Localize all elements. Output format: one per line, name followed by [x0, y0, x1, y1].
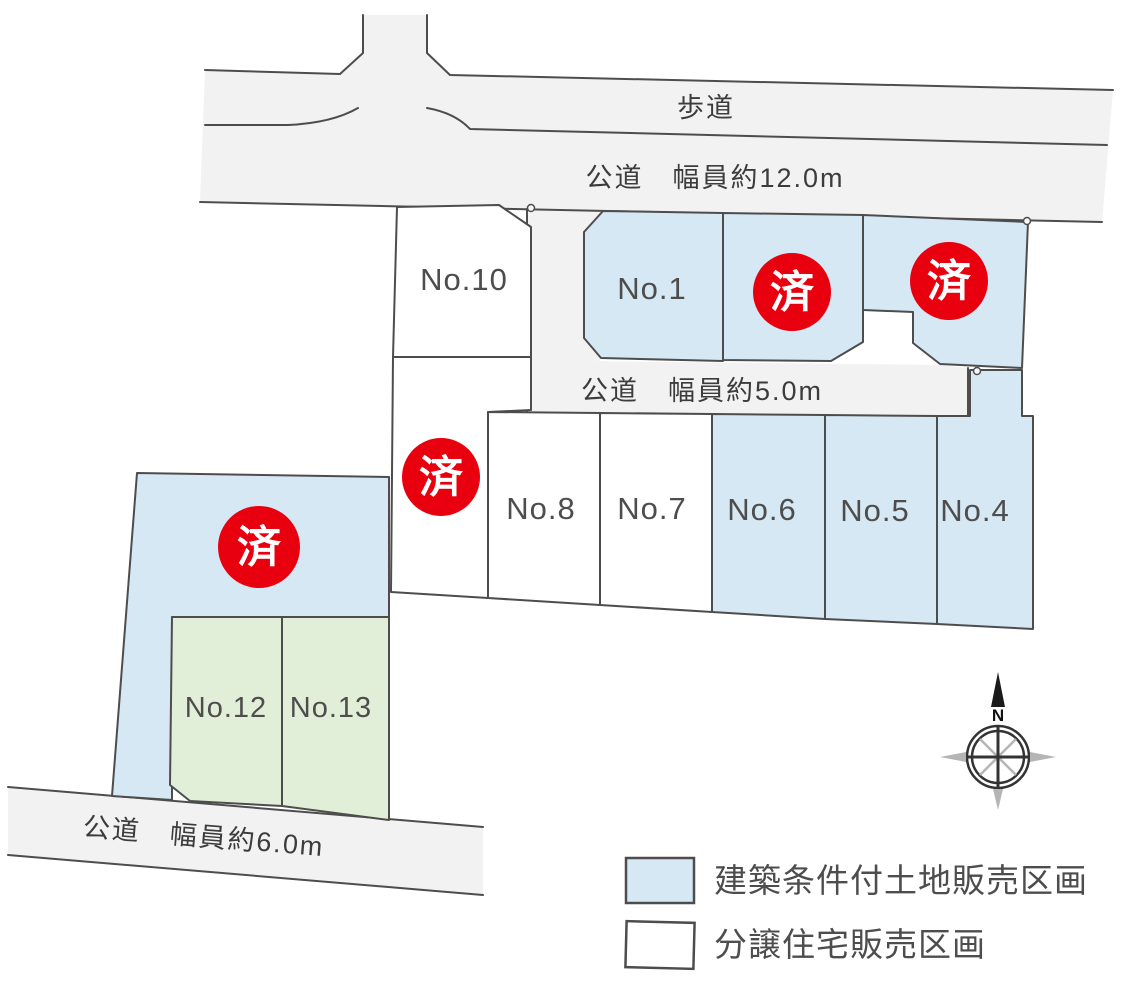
legend-label-house: 分譲住宅販売区画: [714, 926, 986, 963]
sold-badge-label: 済: [237, 523, 282, 572]
legend-label-conditional: 建築条件付土地販売区画: [714, 862, 1088, 899]
road-label-12m: 公道 幅員約12.0m: [585, 163, 844, 193]
compass-rose: N: [940, 672, 1056, 810]
lot-label-no8: No.8: [506, 491, 575, 526]
compass-pointer-east: [1030, 752, 1056, 762]
lot-label-no4: No.4: [940, 493, 1009, 528]
road-label-5m: 公道 幅員約5.0m: [581, 376, 823, 406]
lot-label-no13: No.13: [290, 692, 372, 724]
north-arrow-icon: [991, 672, 1005, 707]
legend-swatch-house: [625, 921, 694, 969]
compass-n-label: N: [992, 706, 1004, 725]
sold-badge: 済: [402, 438, 480, 516]
site-plan-page: 歩道 公道 幅員約12.0m 公道 幅員約5.0m 公道 幅員約6.0m No.…: [0, 0, 1146, 985]
survey-marker-icon: [528, 205, 535, 212]
lot-label-no5: No.5: [840, 493, 909, 528]
lot-label-no12: No.12: [185, 692, 267, 724]
lot-label-no10: No.10: [420, 262, 508, 297]
legend-swatch-conditional: [626, 858, 694, 903]
sold-badge: 済: [910, 242, 988, 320]
legend-item: 分譲住宅販売区画: [625, 921, 986, 969]
site-plan-map: 歩道 公道 幅員約12.0m 公道 幅員約5.0m 公道 幅員約6.0m No.…: [0, 0, 1146, 985]
road-label-sidewalk: 歩道: [677, 93, 735, 123]
road-edge-line: [205, 15, 363, 74]
lot-label-no6: No.6: [727, 492, 796, 527]
survey-marker-icon: [974, 368, 981, 375]
compass-pointer-south: [993, 789, 1003, 810]
lot-label-no1: No.1: [617, 271, 686, 306]
survey-marker-icon: [1024, 218, 1031, 225]
sold-badge-label: 済: [770, 268, 815, 317]
compass-pointer-west: [940, 752, 966, 762]
lot-label-no7: No.7: [617, 491, 686, 526]
sold-badge-label: 済: [927, 257, 972, 306]
sold-badge: 済: [753, 253, 831, 331]
legend-item: 建築条件付土地販売区画: [626, 858, 1088, 903]
sold-badge-label: 済: [419, 453, 464, 502]
legend: 建築条件付土地販売区画 分譲住宅販売区画: [625, 858, 1088, 969]
sold-badge: 済: [218, 506, 300, 588]
